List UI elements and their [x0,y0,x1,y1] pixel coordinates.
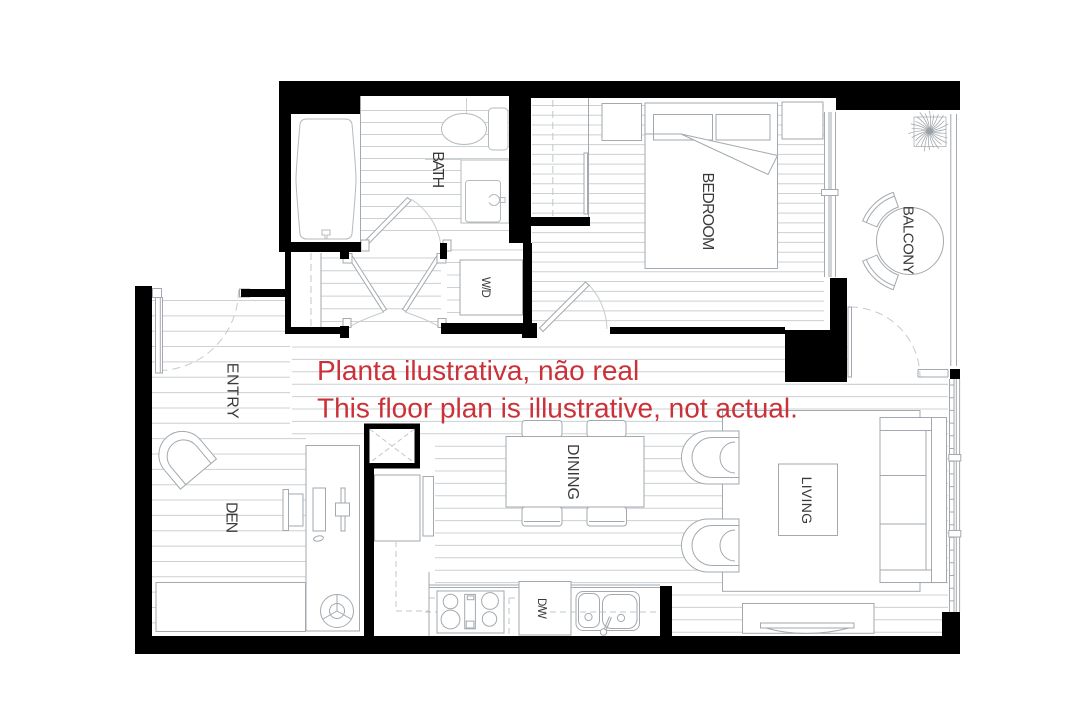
svg-text:BATH: BATH [429,151,446,187]
svg-text:DEN: DEN [223,502,240,533]
svg-text:BEDROOM: BEDROOM [699,172,716,250]
svg-text:This floor plan is illustrativ: This floor plan is illustrative, not act… [317,393,798,424]
svg-text:W/D: W/D [479,277,491,297]
svg-text:ENTRY: ENTRY [224,363,241,419]
svg-text:D/W: D/W [535,598,547,619]
svg-text:Planta ilustrativa, não real: Planta ilustrativa, não real [317,355,639,386]
svg-text:DINING: DINING [564,444,581,500]
svg-text:BALCONY: BALCONY [900,206,917,275]
svg-text:LIVING: LIVING [799,477,815,525]
